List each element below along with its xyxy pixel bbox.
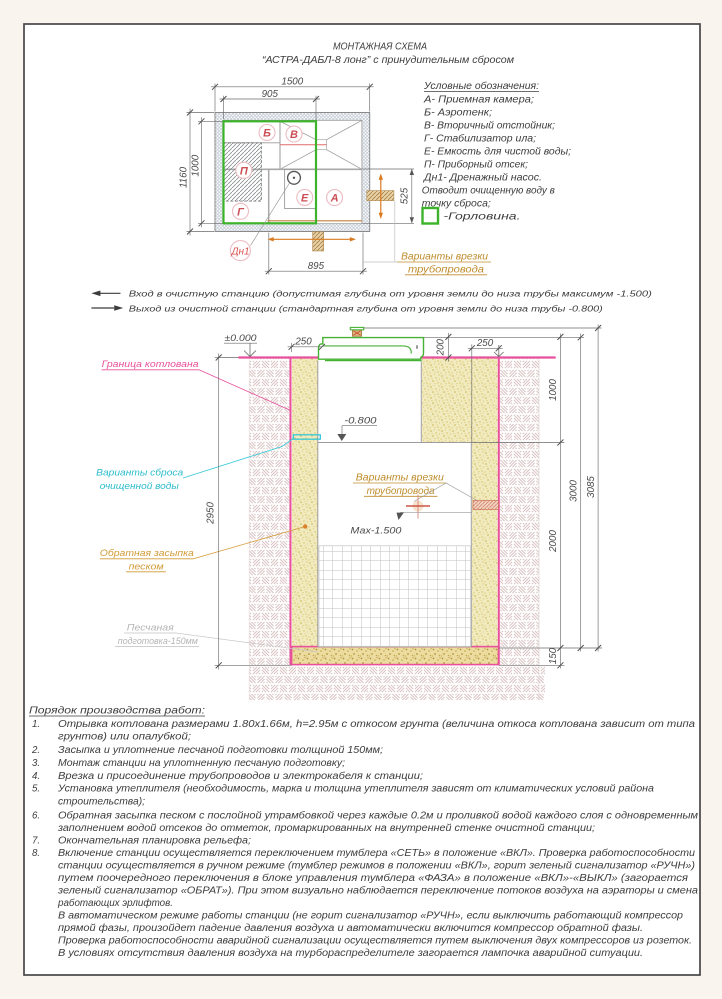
svg-text:работающих эрлифтов.: работающих эрлифтов. <box>57 898 173 909</box>
svg-text:3085: 3085 <box>586 476 597 498</box>
svg-text:Врезка и присоединение трубопр: Врезка и присоединение трубопроводов и э… <box>58 771 423 782</box>
svg-text:Выход из очистной станции (ста: Выход из очистной станции (стандартная г… <box>129 303 603 313</box>
svg-text:прямой фазы, произойдет падени: прямой фазы, произойдет падение давления… <box>58 923 643 934</box>
svg-text:250: 250 <box>476 338 494 349</box>
svg-text:1000: 1000 <box>190 154 201 176</box>
svg-text:Г- Стабилизатор ила;: Г- Стабилизатор ила; <box>424 134 536 145</box>
svg-text:905: 905 <box>262 89 279 100</box>
svg-text:2000: 2000 <box>548 530 559 553</box>
svg-text:В условиях отсутствия давлени: В условиях отсутствия давления воздуха н… <box>58 948 643 959</box>
svg-text:песком: песком <box>129 562 165 572</box>
svg-text:Варианты сброса: Варианты сброса <box>96 468 183 478</box>
svg-text:Песчаная: Песчаная <box>127 623 174 633</box>
svg-text:Граница котлована: Граница котлована <box>102 359 199 369</box>
svg-text:Проверка работоспособности ава: Проверка работоспособности аварийной сиг… <box>58 936 692 947</box>
svg-text:3000: 3000 <box>568 480 579 502</box>
svg-text:заполнением водой отсеков до о: заполнением водой отсеков до отметок, пр… <box>57 823 595 834</box>
svg-text:Вход в очистную станцию (допус: Вход в очистную станцию (допустимая глуб… <box>129 289 652 299</box>
svg-text:Монтаж станции на уплотненную: Монтаж станции на уплотненную песчаную п… <box>58 758 345 769</box>
svg-text:станции осуществляется в ручно: станции осуществляется в ручном режиме (… <box>58 861 695 872</box>
svg-text:Окончательная планировка релье: Окончательная планировка рельефа; <box>58 836 251 847</box>
svg-text:П: П <box>240 165 249 177</box>
svg-text:8.: 8. <box>32 848 40 859</box>
svg-text:250: 250 <box>294 337 312 348</box>
svg-text:Установка утеплителя (необходи: Установка утеплителя (необходимость, мар… <box>57 784 655 795</box>
svg-text:зеленый сигнализатор «ОБРАТ»).: зеленый сигнализатор «ОБРАТ»). При этом … <box>57 886 699 897</box>
svg-text:150: 150 <box>548 647 559 664</box>
svg-text:2950: 2950 <box>206 502 217 525</box>
svg-text:-Горловина.: -Горловина. <box>444 212 521 223</box>
svg-text:Варианты врезки: Варианты врезки <box>401 252 489 263</box>
svg-text:Включение станции осуществляет: Включение станции осуществляется переклю… <box>58 848 696 859</box>
svg-text:грунтов) или опалубкой;: грунтов) или опалубкой; <box>58 732 191 743</box>
svg-text:1.: 1. <box>32 719 40 730</box>
svg-text:±0.000: ±0.000 <box>225 333 258 344</box>
svg-text:Отводит очищенную воду в: Отводит очищенную воду в <box>422 186 555 197</box>
svg-text:895: 895 <box>308 261 325 272</box>
svg-text:Засыпка и уплотнение песчаной: Засыпка и уплотнение песчаной подготовки… <box>58 745 383 756</box>
svg-text:В автоматическом режиме работы: В автоматическом режиме работы станции (… <box>58 911 684 922</box>
svg-text:200: 200 <box>436 338 447 356</box>
svg-text:Обратная засыпка: Обратная засыпка <box>100 548 194 558</box>
svg-text:Обратная засыпка песком с посл: Обратная засыпка песком с послойной утра… <box>58 811 698 822</box>
svg-text:МОНТАЖНАЯ СХЕМА: МОНТАЖНАЯ СХЕМА <box>333 42 427 53</box>
svg-text:строительства);: строительства); <box>58 796 145 807</box>
svg-text:Е- Емкость для чистой воды;: Е- Емкость для чистой воды; <box>424 147 571 158</box>
svg-text:А: А <box>330 193 339 205</box>
svg-text:П- Приборный отсек;: П- Приборный отсек; <box>424 160 528 171</box>
svg-text:6.: 6. <box>32 811 40 822</box>
svg-text:В- Вторичный отстойник;: В- Вторичный отстойник; <box>424 121 555 132</box>
svg-text:3.: 3. <box>32 758 40 769</box>
svg-text:Б- Аэротенк;: Б- Аэротенк; <box>424 108 492 119</box>
svg-text:Мах-1.500: Мах-1.500 <box>350 526 402 537</box>
svg-text:Порядок производства работ:: Порядок производства работ: <box>29 706 205 717</box>
svg-text:трубопровода: трубопровода <box>408 265 485 276</box>
svg-text:Дн1- Дренажный насос.: Дн1- Дренажный насос. <box>423 173 542 184</box>
svg-text:Дн1: Дн1 <box>230 247 249 258</box>
svg-text:Б: Б <box>263 128 271 140</box>
svg-text:А- Приемная камера;: А- Приемная камера; <box>423 95 534 106</box>
svg-text:5.: 5. <box>32 784 40 795</box>
svg-text:Варианты врезки: Варианты врезки <box>356 473 445 484</box>
svg-text:1160: 1160 <box>179 166 190 188</box>
svg-text:-0.800: -0.800 <box>344 416 377 427</box>
svg-text:путем поочередного переключени: путем поочередного переключения в блоке … <box>58 873 688 884</box>
svg-text:1000: 1000 <box>548 379 559 401</box>
svg-text:Е: Е <box>301 192 309 204</box>
svg-text:подготовка-150мм: подготовка-150мм <box>118 636 199 646</box>
svg-text:525: 525 <box>400 187 411 204</box>
svg-text:Отрывка котлована размерами 1.: Отрывка котлована размерами 1.80х1.66м, … <box>58 719 696 730</box>
svg-text:В: В <box>290 129 298 141</box>
svg-text:4.: 4. <box>32 771 40 782</box>
svg-text:7.: 7. <box>32 836 40 847</box>
svg-text:“АСТРА-ДАБЛ-8 лонг” с принудит: “АСТРА-ДАБЛ-8 лонг” с принудительным сбр… <box>262 54 514 66</box>
svg-text:очищенной воды: очищенной воды <box>100 481 179 491</box>
svg-text:Условные обозначения:: Условные обозначения: <box>423 81 539 92</box>
svg-text:1500: 1500 <box>281 77 303 88</box>
svg-text:2.: 2. <box>31 745 40 756</box>
